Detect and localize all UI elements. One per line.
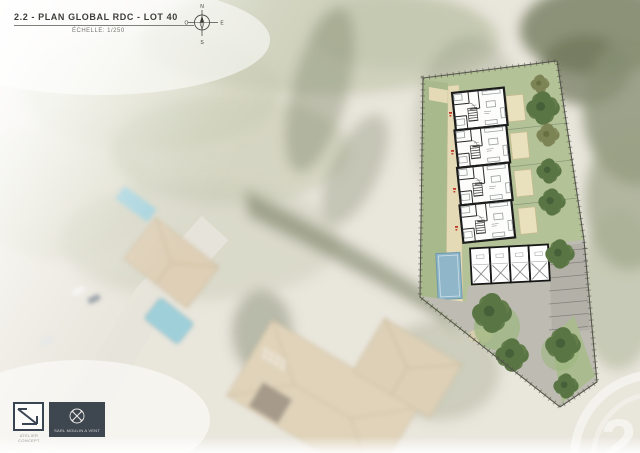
garage-bay (509, 245, 530, 282)
builder-logo: SARL MOULIN A VENT (49, 402, 105, 437)
garage-bay (470, 247, 491, 284)
garage-bay (490, 246, 511, 283)
entry-mark (449, 112, 452, 114)
compass-e: E (220, 21, 224, 27)
compass-rose-icon: N S O E (184, 2, 228, 50)
compass-s: S (200, 40, 204, 46)
unit-floorplan (452, 88, 508, 131)
garage-row (470, 244, 550, 284)
entry-mark (455, 226, 458, 228)
architect-logo-caption: ATELIER CONCEPT (10, 433, 48, 443)
unit-floorplan (455, 125, 511, 168)
unit-floorplan (460, 200, 516, 243)
compass-n: N (200, 4, 204, 10)
title-underline (14, 25, 194, 26)
terrace (506, 94, 526, 122)
unit-floorplan (457, 163, 513, 206)
compass-o: O (185, 21, 189, 27)
plan-pool (436, 252, 462, 299)
entry-mark (453, 188, 456, 190)
terrace (514, 169, 534, 197)
terrace (518, 207, 538, 235)
terrace (510, 132, 530, 160)
architect-logo-icon (15, 404, 42, 429)
page-title: 2.2 - PLAN GLOBAL RDC - LOT 40 (14, 12, 178, 22)
scale-label: ÉCHELLE: 1/250 (72, 28, 125, 34)
plan-sheet: 2.2 - PLAN GLOBAL RDC - LOT 40 ÉCHELLE: … (0, 0, 640, 453)
site-plan (0, 0, 640, 453)
entry-mark (451, 150, 454, 152)
builder-logo-caption: SARL MOULIN A VENT (54, 428, 100, 433)
windmill-icon (66, 405, 88, 427)
housing-units (452, 88, 515, 243)
architect-logo (13, 402, 44, 431)
